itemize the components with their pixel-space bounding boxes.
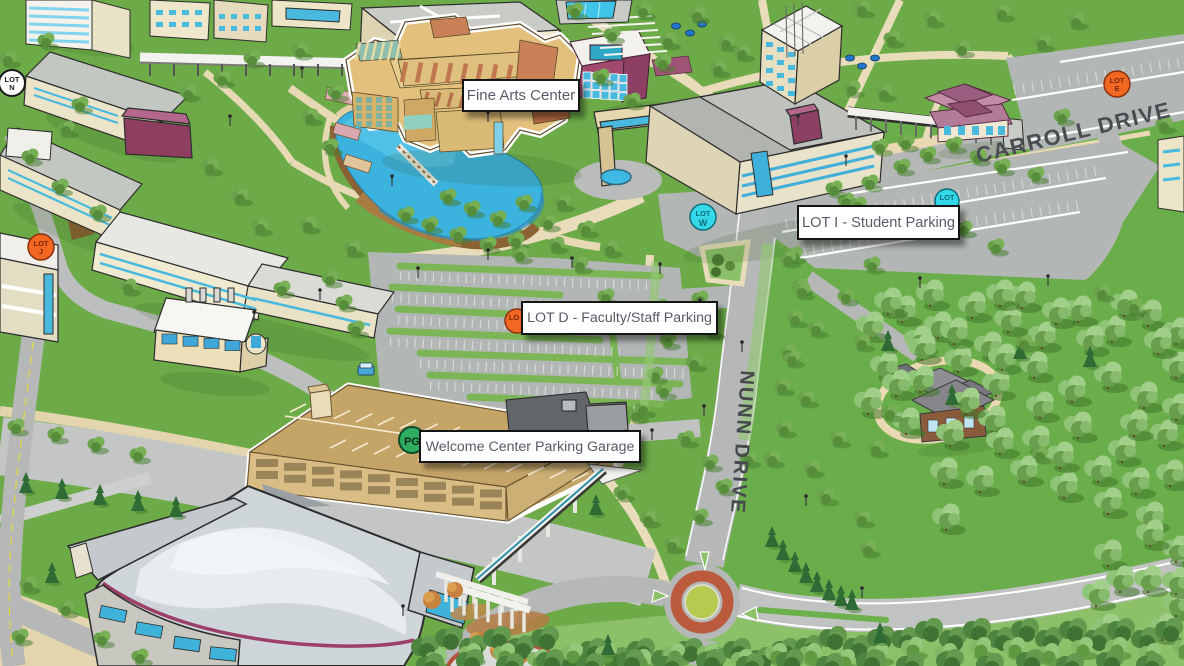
svg-text:J: J — [39, 247, 43, 256]
svg-text:LO: LO — [509, 313, 520, 322]
svg-text:E: E — [1114, 84, 1119, 93]
svg-text:LOT: LOT — [696, 209, 711, 218]
svg-text:PG: PG — [404, 436, 420, 448]
svg-text:W: W — [699, 218, 708, 228]
svg-text:LOT: LOT — [940, 193, 955, 202]
svg-text:N: N — [9, 83, 14, 92]
